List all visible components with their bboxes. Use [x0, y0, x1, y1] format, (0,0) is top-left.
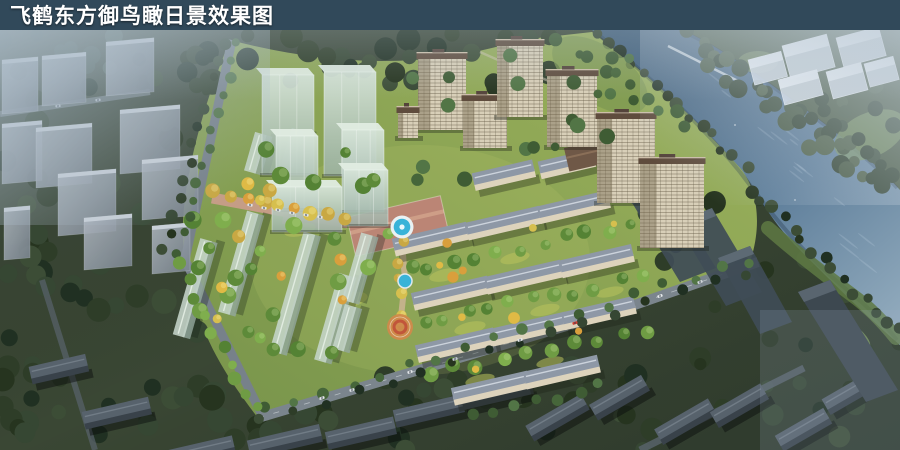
aerial-rendering-image	[0, 30, 900, 450]
page-title: 飞鹤东方御鸟瞰日景效果图	[0, 0, 274, 30]
viewport: 飞鹤东方御鸟瞰日景效果图	[0, 0, 900, 450]
title-bar: 飞鹤东方御鸟瞰日景效果图	[0, 0, 900, 30]
